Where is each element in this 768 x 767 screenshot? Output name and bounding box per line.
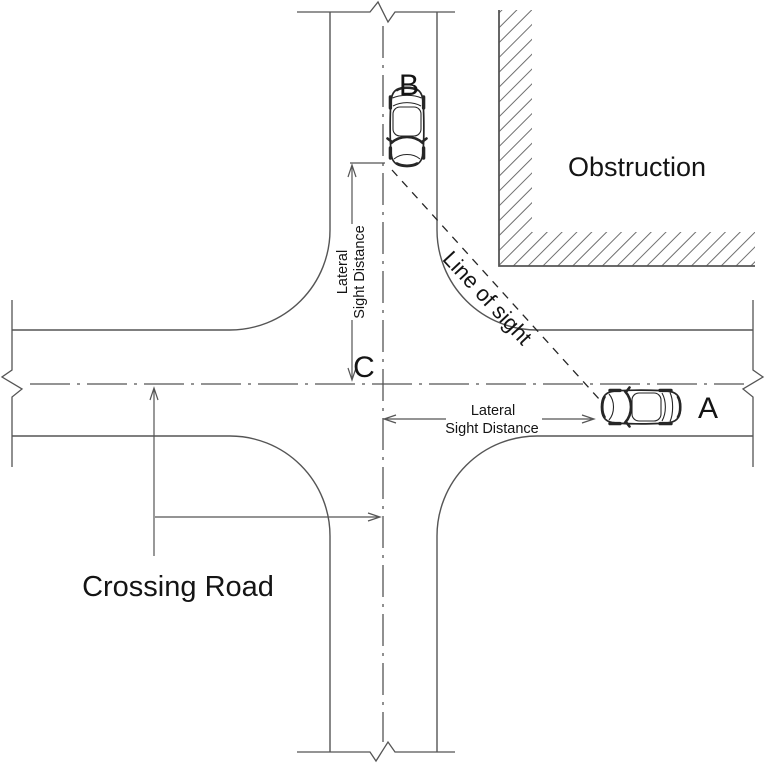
break-symbol-top: [297, 2, 455, 22]
vehicle-b-label: B: [399, 69, 419, 102]
obstruction-hatch-area: [499, 10, 755, 266]
road-edge-top-left: [12, 12, 330, 330]
intersection-sight-distance-diagram: Obstruction Line of sight Lateral Sight …: [0, 0, 768, 767]
vertical-lateral-line2: Sight Distance: [352, 225, 368, 319]
crossing-road-label: Crossing Road: [82, 571, 274, 603]
break-symbol-right: [743, 300, 763, 467]
vertical-lateral-dimension-label: Lateral Sight Distance: [335, 225, 368, 319]
obstruction-label: Obstruction: [568, 152, 706, 182]
road-edge-bottom-right: [437, 436, 753, 752]
horizontal-lateral-line1: Lateral: [471, 403, 515, 419]
point-c-label: C: [353, 351, 375, 384]
break-symbol-left: [2, 300, 22, 467]
line-of-sight-dashed: [392, 170, 599, 399]
horizontal-lateral-dimension-label: Lateral Sight Distance: [445, 403, 539, 437]
horizontal-lateral-line2: Sight Distance: [445, 421, 539, 437]
vehicle-a-icon: [602, 388, 681, 427]
vertical-lateral-line1: Lateral: [335, 250, 351, 294]
obstruction-border: [499, 10, 755, 266]
break-symbol-bottom: [297, 742, 455, 761]
vehicle-a-label: A: [698, 392, 718, 425]
